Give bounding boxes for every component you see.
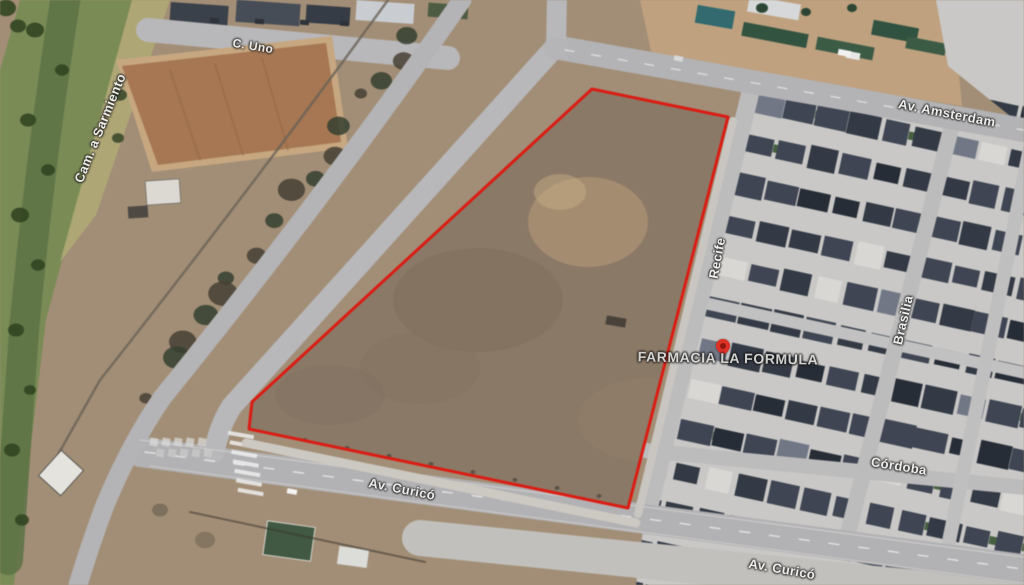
street-label-cam-a-sarmiento: Cam. a Sarmiento: [71, 71, 128, 184]
street-label-av-curico-west: Av. Curicó: [367, 475, 436, 503]
street-label-av-amsterdam: Av. Amsterdam: [897, 96, 997, 130]
poi-label-farmacia[interactable]: FARMACIA LA FORMULA: [638, 348, 819, 367]
street-label-recife: Recife: [706, 236, 729, 280]
street-label-c-uno: C. Uno: [232, 36, 275, 56]
satellite-map[interactable]: Cam. a SarmientoC. UnoAv. AmsterdamRecif…: [0, 0, 1024, 585]
map-label-layer: Cam. a SarmientoC. UnoAv. AmsterdamRecif…: [0, 0, 1024, 585]
street-label-av-curico-east: Av. Curicó: [747, 556, 816, 583]
street-label-brasilia: Brasilia: [890, 294, 916, 346]
street-label-cordoba: Córdoba: [870, 454, 928, 478]
